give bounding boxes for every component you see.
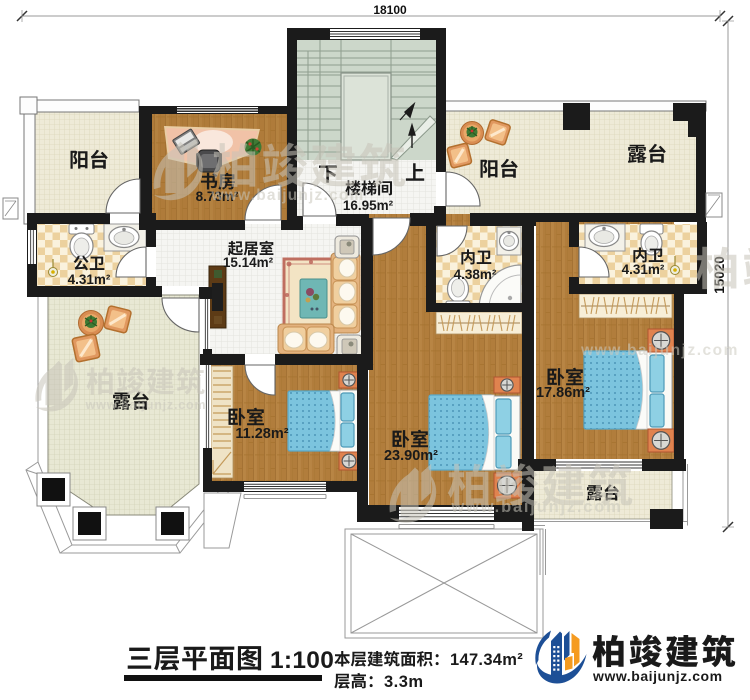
svg-text:4.31m²: 4.31m²: [622, 262, 665, 277]
svg-text:www.baijunjz.com: www.baijunjz.com: [592, 668, 723, 684]
svg-text:www.baijunjz.com: www.baijunjz.com: [580, 342, 739, 359]
svg-text:4.31m²: 4.31m²: [68, 272, 111, 287]
svg-text:1:100: 1:100: [270, 647, 334, 674]
svg-text:18100: 18100: [373, 3, 407, 17]
svg-text:www.baijunjz.com: www.baijunjz.com: [85, 398, 207, 412]
svg-text:4.38m²: 4.38m²: [454, 267, 497, 282]
svg-text:147.34m²: 147.34m²: [450, 651, 523, 669]
svg-text:www.baijunjz.com: www.baijunjz.com: [211, 187, 365, 204]
svg-text:3.3m: 3.3m: [384, 673, 424, 691]
svg-text:www.baijunjz.com: www.baijunjz.com: [450, 498, 622, 516]
svg-text:23.90m²: 23.90m²: [384, 448, 438, 464]
svg-text:17.86m²: 17.86m²: [536, 385, 590, 401]
svg-text:15.14m²: 15.14m²: [223, 255, 274, 270]
svg-text:11.28m²: 11.28m²: [235, 426, 288, 442]
